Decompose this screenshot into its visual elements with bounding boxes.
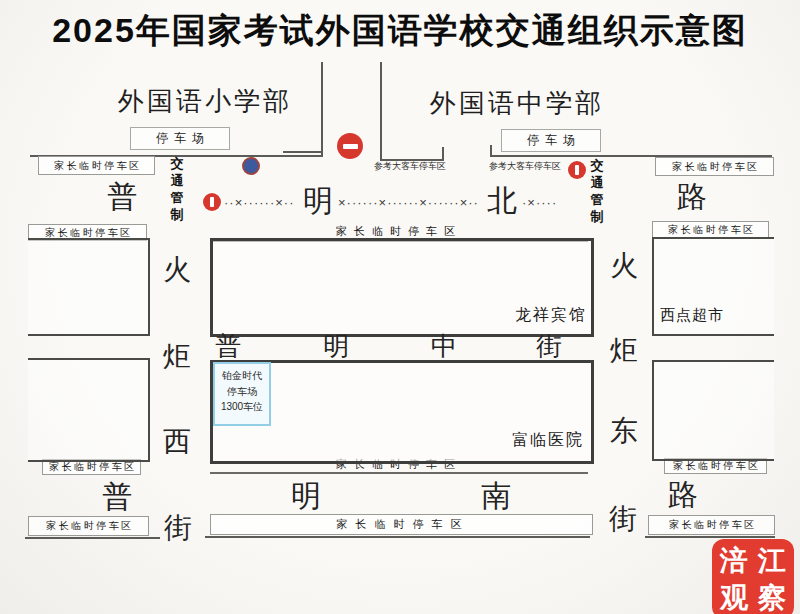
watermark-logo: 涪 江 观 察 bbox=[712, 539, 794, 614]
east-street-char: 东 bbox=[610, 412, 638, 450]
middle-street-char: 普 bbox=[215, 329, 241, 364]
middle-street-char: 中 bbox=[431, 329, 457, 364]
secondary-parking-label: 停车场 bbox=[527, 132, 581, 149]
secondary-school-label: 外国语中学部 bbox=[430, 86, 604, 121]
block-east-south bbox=[652, 360, 774, 461]
south-road-char: 明 bbox=[291, 476, 321, 517]
west-street-char: 炬 bbox=[163, 338, 191, 376]
gate-tick-left bbox=[442, 147, 444, 161]
garage-line2: 停车场 bbox=[215, 384, 269, 400]
watermark-char: 察 bbox=[758, 584, 786, 612]
closure-marks: ·×···· bbox=[522, 195, 578, 210]
parent-parking-label: 家长临时停车区 bbox=[28, 516, 149, 536]
west-street-char: 街 bbox=[164, 509, 192, 547]
north-road-char: 路 bbox=[677, 177, 707, 218]
north-road-char: 普 bbox=[107, 177, 137, 218]
parent-parking-label: 家长临时停车区 bbox=[210, 514, 593, 535]
bus-parking-label: 参考大客车停车区 bbox=[489, 160, 561, 173]
primary-school-label: 外国语小学部 bbox=[118, 84, 292, 119]
closure-marks: ×······×······×······×·· bbox=[338, 195, 488, 210]
road-line-bottom-center bbox=[205, 536, 590, 538]
parent-parking-label: 家长临时停车区 bbox=[38, 156, 155, 175]
watermark-char: 涪 bbox=[720, 547, 748, 575]
east-street-char: 火 bbox=[610, 247, 638, 285]
south-road-char: 普 bbox=[102, 477, 132, 518]
south-road-char: 南 bbox=[481, 476, 511, 517]
traffic-control-right-label: 交通管制 bbox=[589, 158, 605, 226]
west-street-char: 西 bbox=[163, 423, 191, 461]
hotel-label: 龙祥宾馆 bbox=[515, 305, 587, 326]
road-line-bottom-left bbox=[25, 537, 160, 539]
control-sign-left-bar bbox=[210, 197, 214, 207]
watermark-char: 江 bbox=[758, 547, 786, 575]
no-parking-sign-icon bbox=[242, 157, 260, 175]
no-entry-sign-icon bbox=[337, 133, 363, 159]
traffic-control-left-label: 交通管制 bbox=[169, 156, 185, 224]
middle-street-char: 街 bbox=[536, 329, 562, 364]
control-sign-right-bar bbox=[575, 165, 579, 175]
bakery-label: 西点超市 bbox=[660, 306, 724, 325]
closure-marks: ··×······×·· bbox=[224, 195, 308, 210]
hospital-label: 富临医院 bbox=[512, 430, 584, 451]
control-sign-right-icon bbox=[568, 161, 586, 179]
secondary-school-wall bbox=[380, 62, 382, 161]
north-road-char: 北 bbox=[487, 181, 517, 222]
middle-street-char: 明 bbox=[323, 329, 349, 364]
traffic-diagram: 2025年国家考试外国语学校交通组织示意图 外国语小学部 外国语中学部 停车场 … bbox=[0, 0, 800, 614]
watermark-char: 观 bbox=[720, 584, 748, 612]
parent-parking-label: 家长临时停车区 bbox=[648, 515, 775, 535]
block-west-north bbox=[28, 238, 150, 336]
garage-line3: 1300车位 bbox=[215, 399, 269, 415]
north-road-char: 明 bbox=[303, 181, 333, 222]
south-road-char: 路 bbox=[668, 475, 698, 516]
east-street-char: 街 bbox=[609, 500, 637, 538]
east-street-char: 炬 bbox=[610, 332, 638, 370]
road-line-bottom-right bbox=[645, 536, 775, 538]
west-street-char: 火 bbox=[163, 251, 191, 289]
secondary-parking-box: 停车场 bbox=[501, 129, 601, 152]
parent-parking-label: 家长临时停车区 bbox=[655, 157, 774, 176]
garage-info-box: 铂金时代 停车场 1300车位 bbox=[213, 362, 271, 426]
no-entry-bar bbox=[343, 144, 358, 149]
diagram-title: 2025年国家考试外国语学校交通组织示意图 bbox=[0, 8, 800, 54]
parent-parking-label: 家长临时停车区 bbox=[652, 221, 769, 238]
primary-parking-box: 停车场 bbox=[130, 127, 230, 150]
bus-parking-label: 参考大客车停车区 bbox=[374, 160, 446, 173]
control-sign-left-icon bbox=[203, 193, 221, 211]
primary-parking-label: 停车场 bbox=[156, 130, 210, 147]
garage-line1: 铂金时代 bbox=[215, 368, 269, 384]
primary-school-wall bbox=[321, 62, 323, 157]
primary-school-corner bbox=[283, 151, 323, 153]
block-west-south bbox=[28, 358, 150, 462]
